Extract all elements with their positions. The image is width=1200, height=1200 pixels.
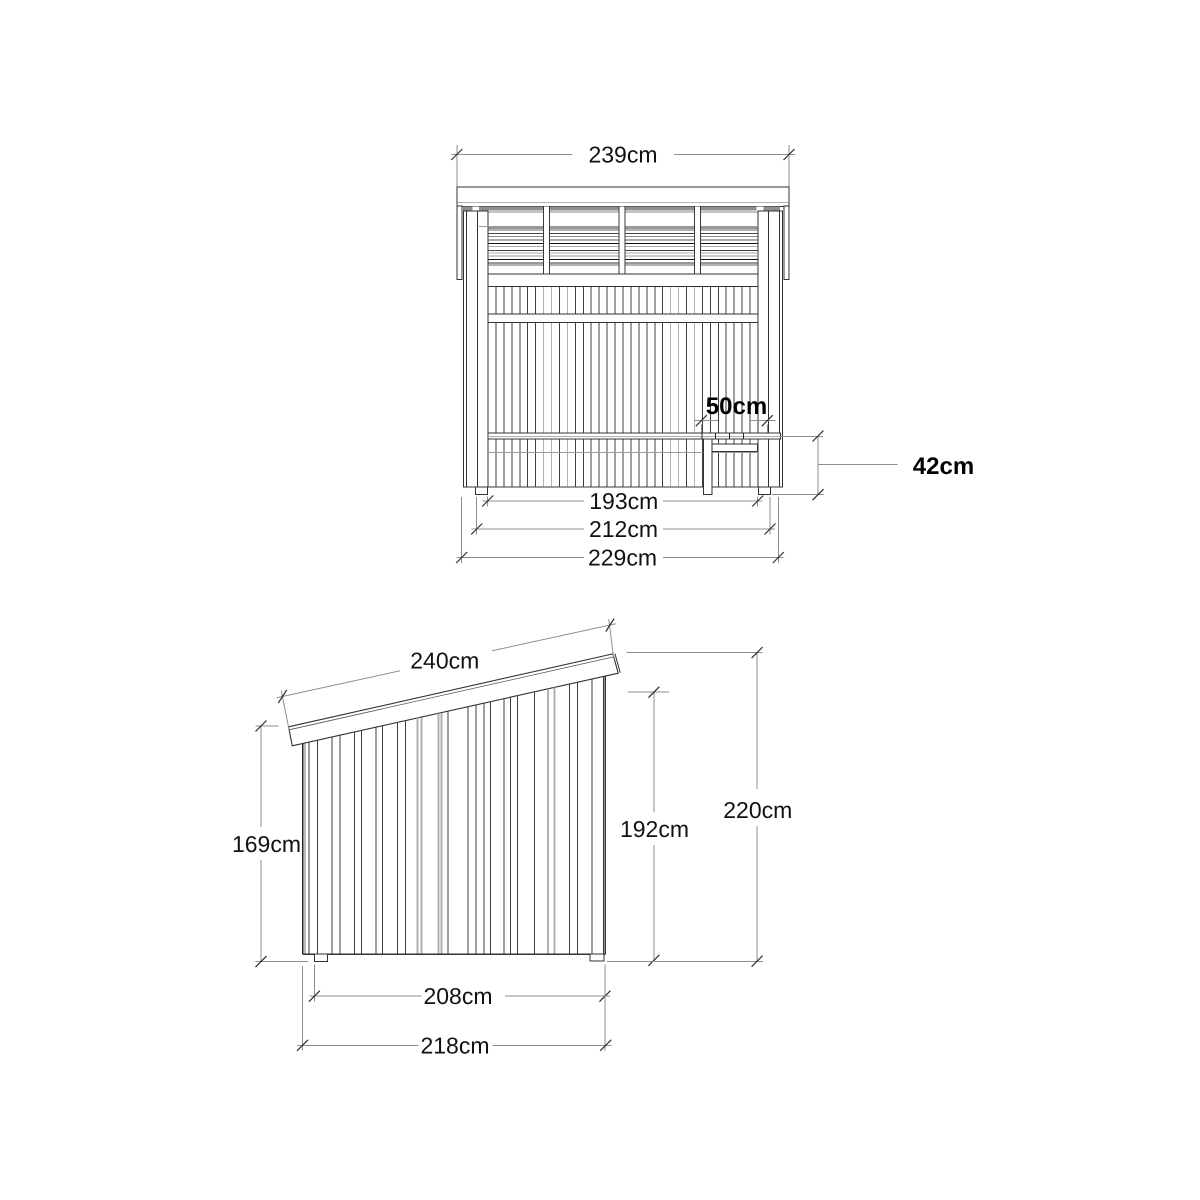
svg-text:220cm: 220cm xyxy=(723,797,792,823)
svg-text:193cm: 193cm xyxy=(589,488,658,514)
svg-text:240cm: 240cm xyxy=(410,647,479,673)
svg-text:239cm: 239cm xyxy=(588,142,657,168)
svg-text:218cm: 218cm xyxy=(420,1032,489,1058)
svg-text:42cm: 42cm xyxy=(913,453,974,480)
svg-text:50cm: 50cm xyxy=(706,393,767,420)
svg-text:212cm: 212cm xyxy=(589,516,658,542)
svg-text:192cm: 192cm xyxy=(620,816,689,842)
svg-text:229cm: 229cm xyxy=(588,545,657,571)
svg-text:208cm: 208cm xyxy=(423,983,492,1009)
svg-text:169cm: 169cm xyxy=(232,831,301,857)
